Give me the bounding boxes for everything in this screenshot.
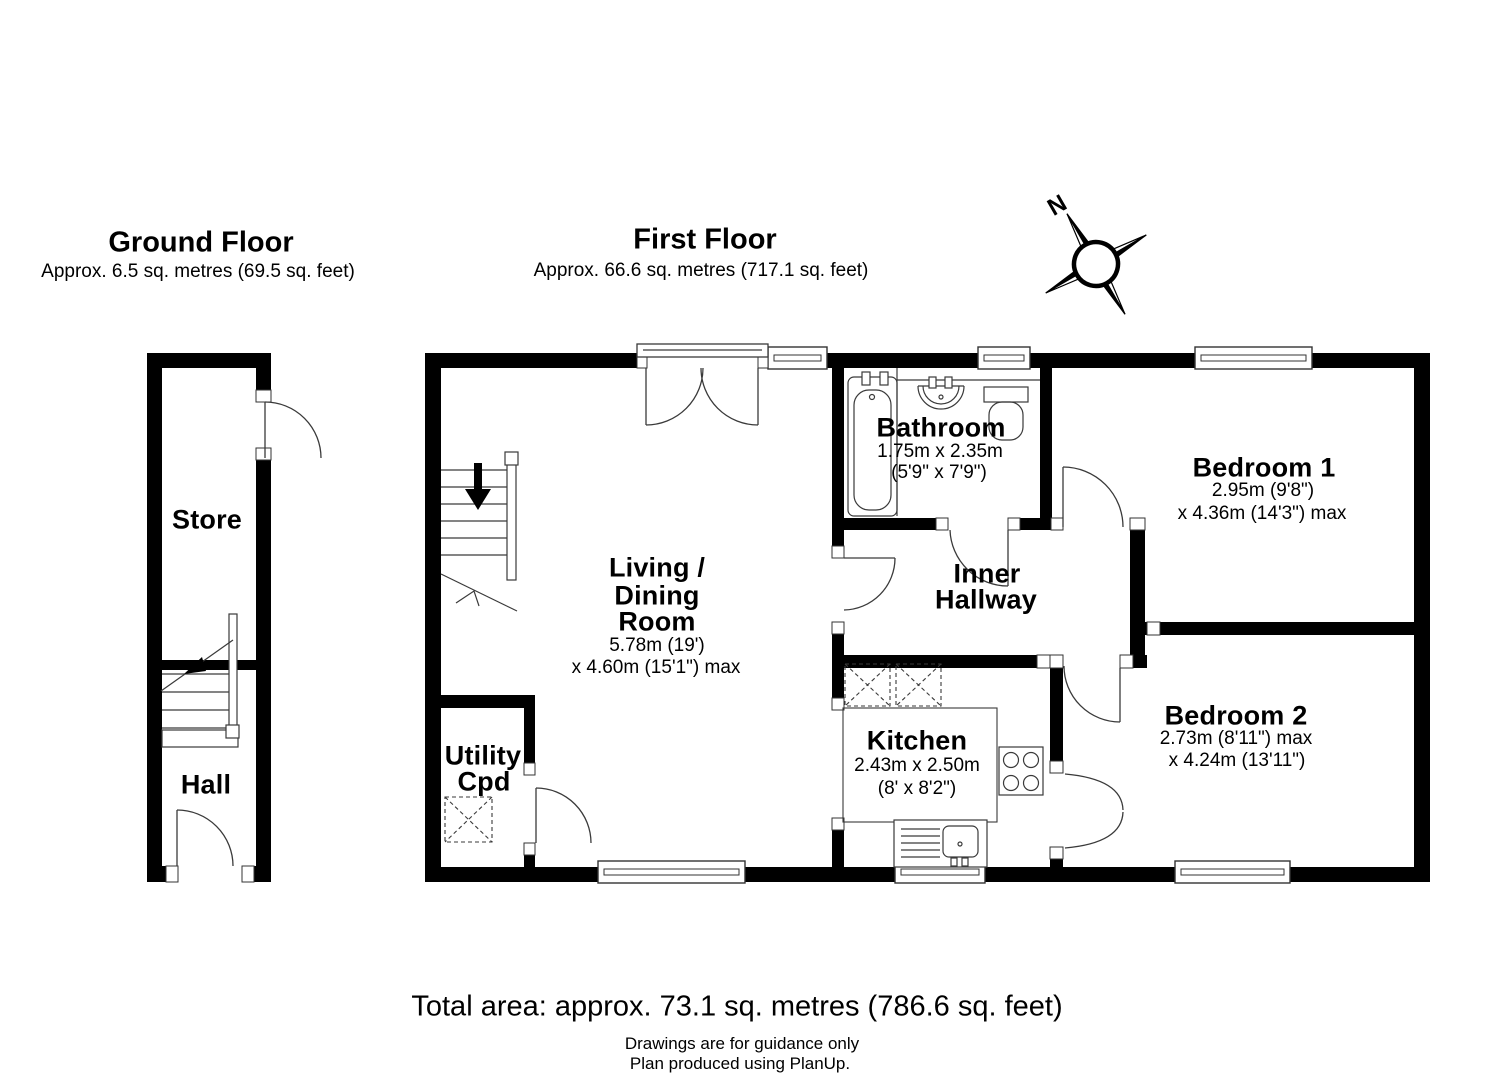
floorplan-graphic: N [0,0,1485,1080]
window-bottom-living [598,861,745,883]
floorplan-page: N Ground Floor Approx. 6.5 sq. metres (6… [0,0,1485,1080]
window-bedroom2 [1175,861,1290,883]
first-floor-area: Approx. 66.6 sq. metres (717.1 sq. feet) [534,260,869,282]
bedroom1-name: Bedroom 1 [1193,453,1336,484]
kitchen-sink-icon [894,820,987,867]
window-bathroom [978,347,1030,369]
hob-icon [999,747,1043,795]
store-door-icon [265,402,321,458]
inner-hallway-line2: Hallway [935,585,1037,616]
bedroom1-dims-line2: x 4.36m (14'3") max [1178,503,1347,525]
stairs-ground-floor-icon [161,614,239,747]
living-room-door-icon [844,558,895,610]
living-dims-line1: 5.78m (19') [609,635,705,657]
cupboard-doors-icon [1065,774,1123,848]
kitchen-dims-line2: (8' x 8'2") [878,778,956,800]
ground-floor-title: Ground Floor [108,227,293,260]
living-dims-line2: x 4.60m (15'1") max [572,657,741,679]
bathroom-dims-line1: 1.75m x 2.35m [877,441,1003,463]
utility-line2: Cpd [457,767,510,798]
window-top-living [768,347,827,369]
ground-floor-area: Approx. 6.5 sq. metres (69.5 sq. feet) [41,261,355,283]
stairs-first-floor-icon [441,452,518,611]
bedroom2-dims-line2: x 4.24m (13'11") [1169,750,1306,772]
room-label-store: Store [172,505,242,536]
bedroom1-dims-line1: 2.95m (9'8") [1212,480,1314,502]
first-floor-title: First Floor [633,224,776,257]
living-name-line3: Room [618,607,695,638]
bathroom-dims-line2: (5'9" x 7'9") [891,462,987,484]
bedroom2-name: Bedroom 2 [1165,701,1308,732]
window-bedroom1 [1195,347,1312,369]
total-area-text: Total area: approx. 73.1 sq. metres (786… [411,991,1062,1024]
kitchen-dims-line1: 2.43m x 2.50m [854,755,980,777]
compass-rose-icon: N [1017,185,1175,343]
room-label-hall: Hall [181,770,231,801]
bedroom2-dims-line1: 2.73m (8'11") max [1160,728,1313,750]
bathroom-name: Bathroom [876,413,1005,444]
french-doors-icon [637,344,768,425]
bedroom1-door-icon [1063,467,1123,527]
utility-door-icon [536,788,591,843]
disclaimer-line2: Plan produced using PlanUp. [630,1054,850,1074]
front-door-icon [177,810,233,866]
compass-north-label: N [1043,189,1072,221]
disclaimer-line1: Drawings are for guidance only [625,1034,859,1054]
kitchen-name: Kitchen [867,726,967,757]
ground-floor-walls [147,353,271,882]
sink-icon [918,377,964,409]
living-name-line1: Living / [609,553,705,584]
bedroom2-door-icon [1064,666,1120,722]
